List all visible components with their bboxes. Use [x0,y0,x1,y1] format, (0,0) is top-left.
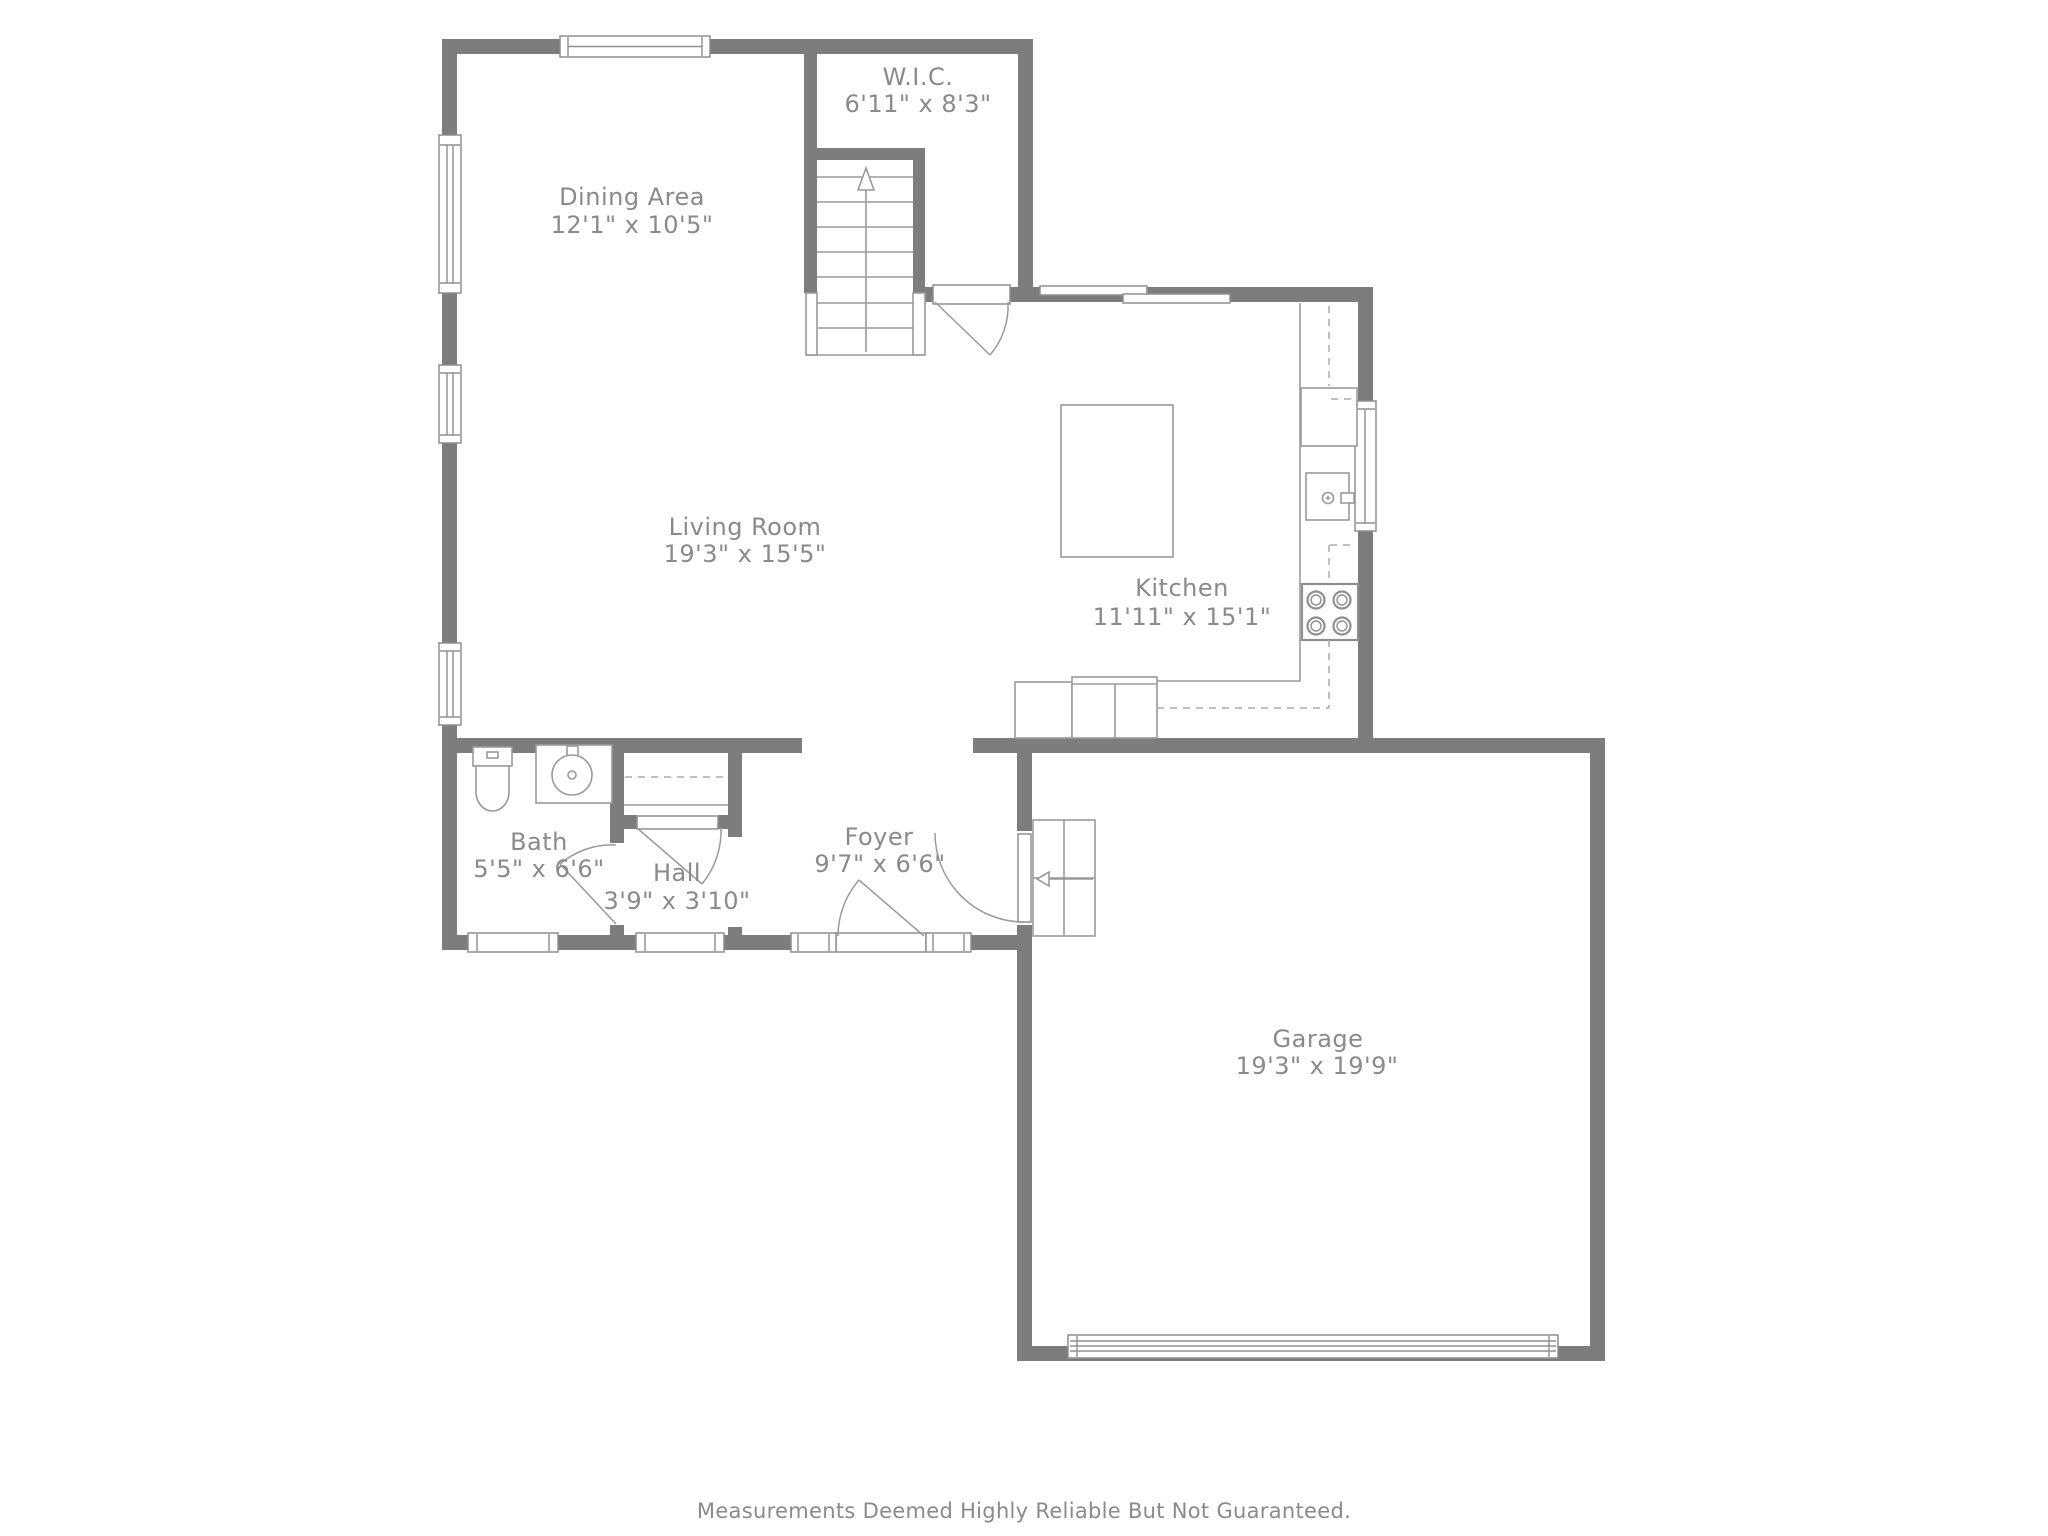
label-kitchen-name: Kitchen [1135,574,1229,602]
label-hall-name: Hall [653,859,701,887]
label-dining-dims: 12'1" x 10'5" [551,211,714,239]
kitchen-peninsula-cabinet [1015,682,1072,738]
label-living-dims: 19'3" x 15'5" [664,540,827,568]
staircase [806,168,925,355]
doors [560,302,1031,936]
windows [439,36,1376,952]
stove [1302,584,1358,640]
bath-fixtures [473,745,612,811]
garage-door [1068,1335,1558,1358]
stair-open-wall-left [806,293,817,355]
wall-stair-top [804,148,925,160]
wall-stair-right [913,148,925,293]
front-door [838,880,924,936]
window-bath-bottom [468,933,558,952]
wic-door [935,302,1008,355]
label-bath-name: Bath [510,828,568,856]
wall-closet-stub-right [718,815,728,829]
kitchen-base-cabinet [1072,677,1157,738]
front-door-opening [836,933,926,952]
label-living-name: Living Room [669,513,822,541]
wall-top-exterior [442,39,1033,54]
window-left-3 [439,643,461,725]
window-foyer-sidelite-left [791,933,836,952]
label-garage-name: Garage [1273,1025,1364,1053]
window-left-1 [439,135,461,293]
label-kitchen-dims: 11'11" x 15'1" [1093,603,1272,631]
label-dining-name: Dining Area [559,183,705,211]
floorplan-canvas: W.I.C. 6'11" x 8'3" Dining Area 12'1" x … [0,0,2048,1536]
garage-elements [1033,820,1558,1358]
garage-entry-door [935,833,1031,922]
wic-door-opening [933,285,1010,304]
floorplan-svg: W.I.C. 6'11" x 8'3" Dining Area 12'1" x … [0,0,2048,1536]
window-foyer-sidelite-right [926,933,971,952]
label-hall-dims: 3'9" x 3'10" [603,887,750,915]
bath-vanity-sink [536,745,612,803]
kitchen-fixtures [1015,303,1358,738]
wall-garage-top [973,738,1605,753]
window-kitchen-right [1355,401,1376,531]
label-bath-dims: 5'5" x 6'6" [473,855,604,883]
toilet [473,747,512,811]
disclaimer-text: Measurements Deemed Highly Reliable But … [697,1499,1351,1523]
kitchen-sink [1306,473,1354,520]
stair-open-wall-right [913,293,925,355]
window-dining-top [560,36,710,57]
hall-closet [624,777,728,805]
label-foyer-name: Foyer [845,823,914,851]
refrigerator [1301,388,1357,446]
wall-dining-wic-divider [804,39,817,293]
wall-closet-stub-left [624,815,637,829]
label-wic-dims: 6'11" x 8'3" [844,90,991,118]
label-garage-dims: 19'3" x 19'9" [1236,1052,1399,1080]
kitchen-island [1061,405,1173,557]
stair-up-arrow-icon [858,168,874,190]
window-hall-bottom [636,933,724,952]
label-wic-name: W.I.C. [883,63,954,91]
wall-wic-right [1018,39,1033,302]
window-left-2 [439,365,461,443]
label-foyer-dims: 9'7" x 6'6" [814,850,945,878]
wall-garage-right [1590,738,1605,1361]
garage-steps [1033,820,1095,936]
